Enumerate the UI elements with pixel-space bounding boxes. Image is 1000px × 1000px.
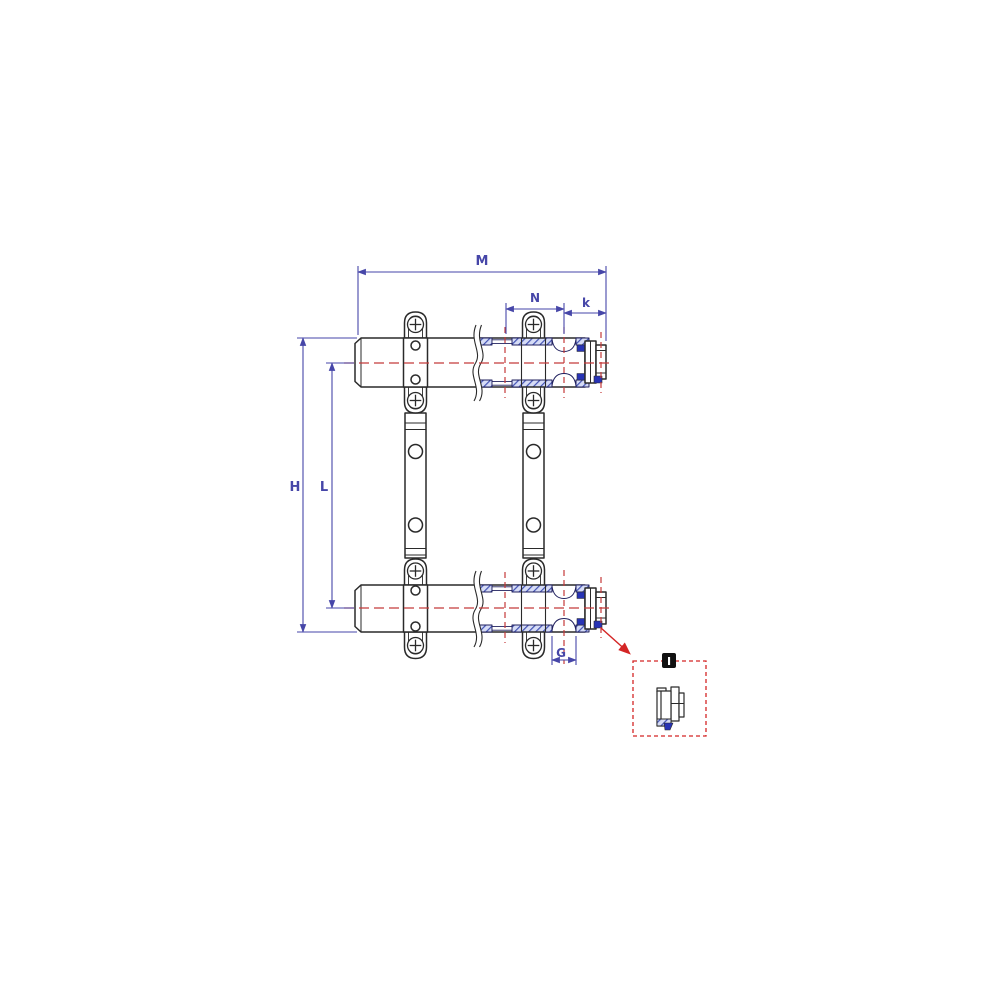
dim-label-H: H: [290, 480, 301, 495]
dim-label-k: k: [582, 296, 591, 310]
detail-tag-label: I: [667, 655, 671, 668]
screw-icon: [408, 638, 424, 654]
strap-hole: [411, 341, 420, 350]
screw-icon: [526, 638, 542, 654]
port-opening: [492, 382, 512, 386]
screw-icon: [526, 563, 542, 579]
dim-label-N: N: [530, 291, 540, 305]
dim-label-L: L: [320, 480, 328, 495]
bracket-bar: [405, 413, 426, 558]
fitting-flange: [679, 693, 684, 717]
dim-label-G: G: [556, 646, 566, 660]
strap-hole: [411, 375, 420, 384]
mounting-hole: [527, 445, 541, 459]
technical-drawing-page: M N k H L G I: [0, 0, 1000, 1000]
strap-hole: [411, 622, 420, 631]
screw-icon: [408, 393, 424, 409]
screw-icon: [408, 317, 424, 333]
screw-icon: [526, 393, 542, 409]
detail-callout: I: [601, 628, 706, 736]
callout-arrow: [601, 628, 629, 653]
mounting-hole: [409, 445, 423, 459]
manifold-structure: [355, 312, 606, 659]
manifold-drawing: M N k H L G I: [0, 0, 1000, 1000]
port-opening: [492, 340, 512, 344]
screw-icon: [526, 317, 542, 333]
bracket-left: [404, 312, 428, 659]
strap-hole: [411, 586, 420, 595]
bracket-bar: [523, 413, 544, 558]
mounting-hole: [409, 518, 423, 532]
port-opening: [492, 587, 512, 591]
detail-fitting: [657, 687, 684, 730]
dim-label-M: M: [476, 254, 489, 269]
port-opening: [492, 627, 512, 631]
fitting-seal: [664, 723, 673, 730]
detail-tag: I: [662, 653, 676, 668]
mounting-hole: [527, 518, 541, 532]
screw-icon: [408, 563, 424, 579]
